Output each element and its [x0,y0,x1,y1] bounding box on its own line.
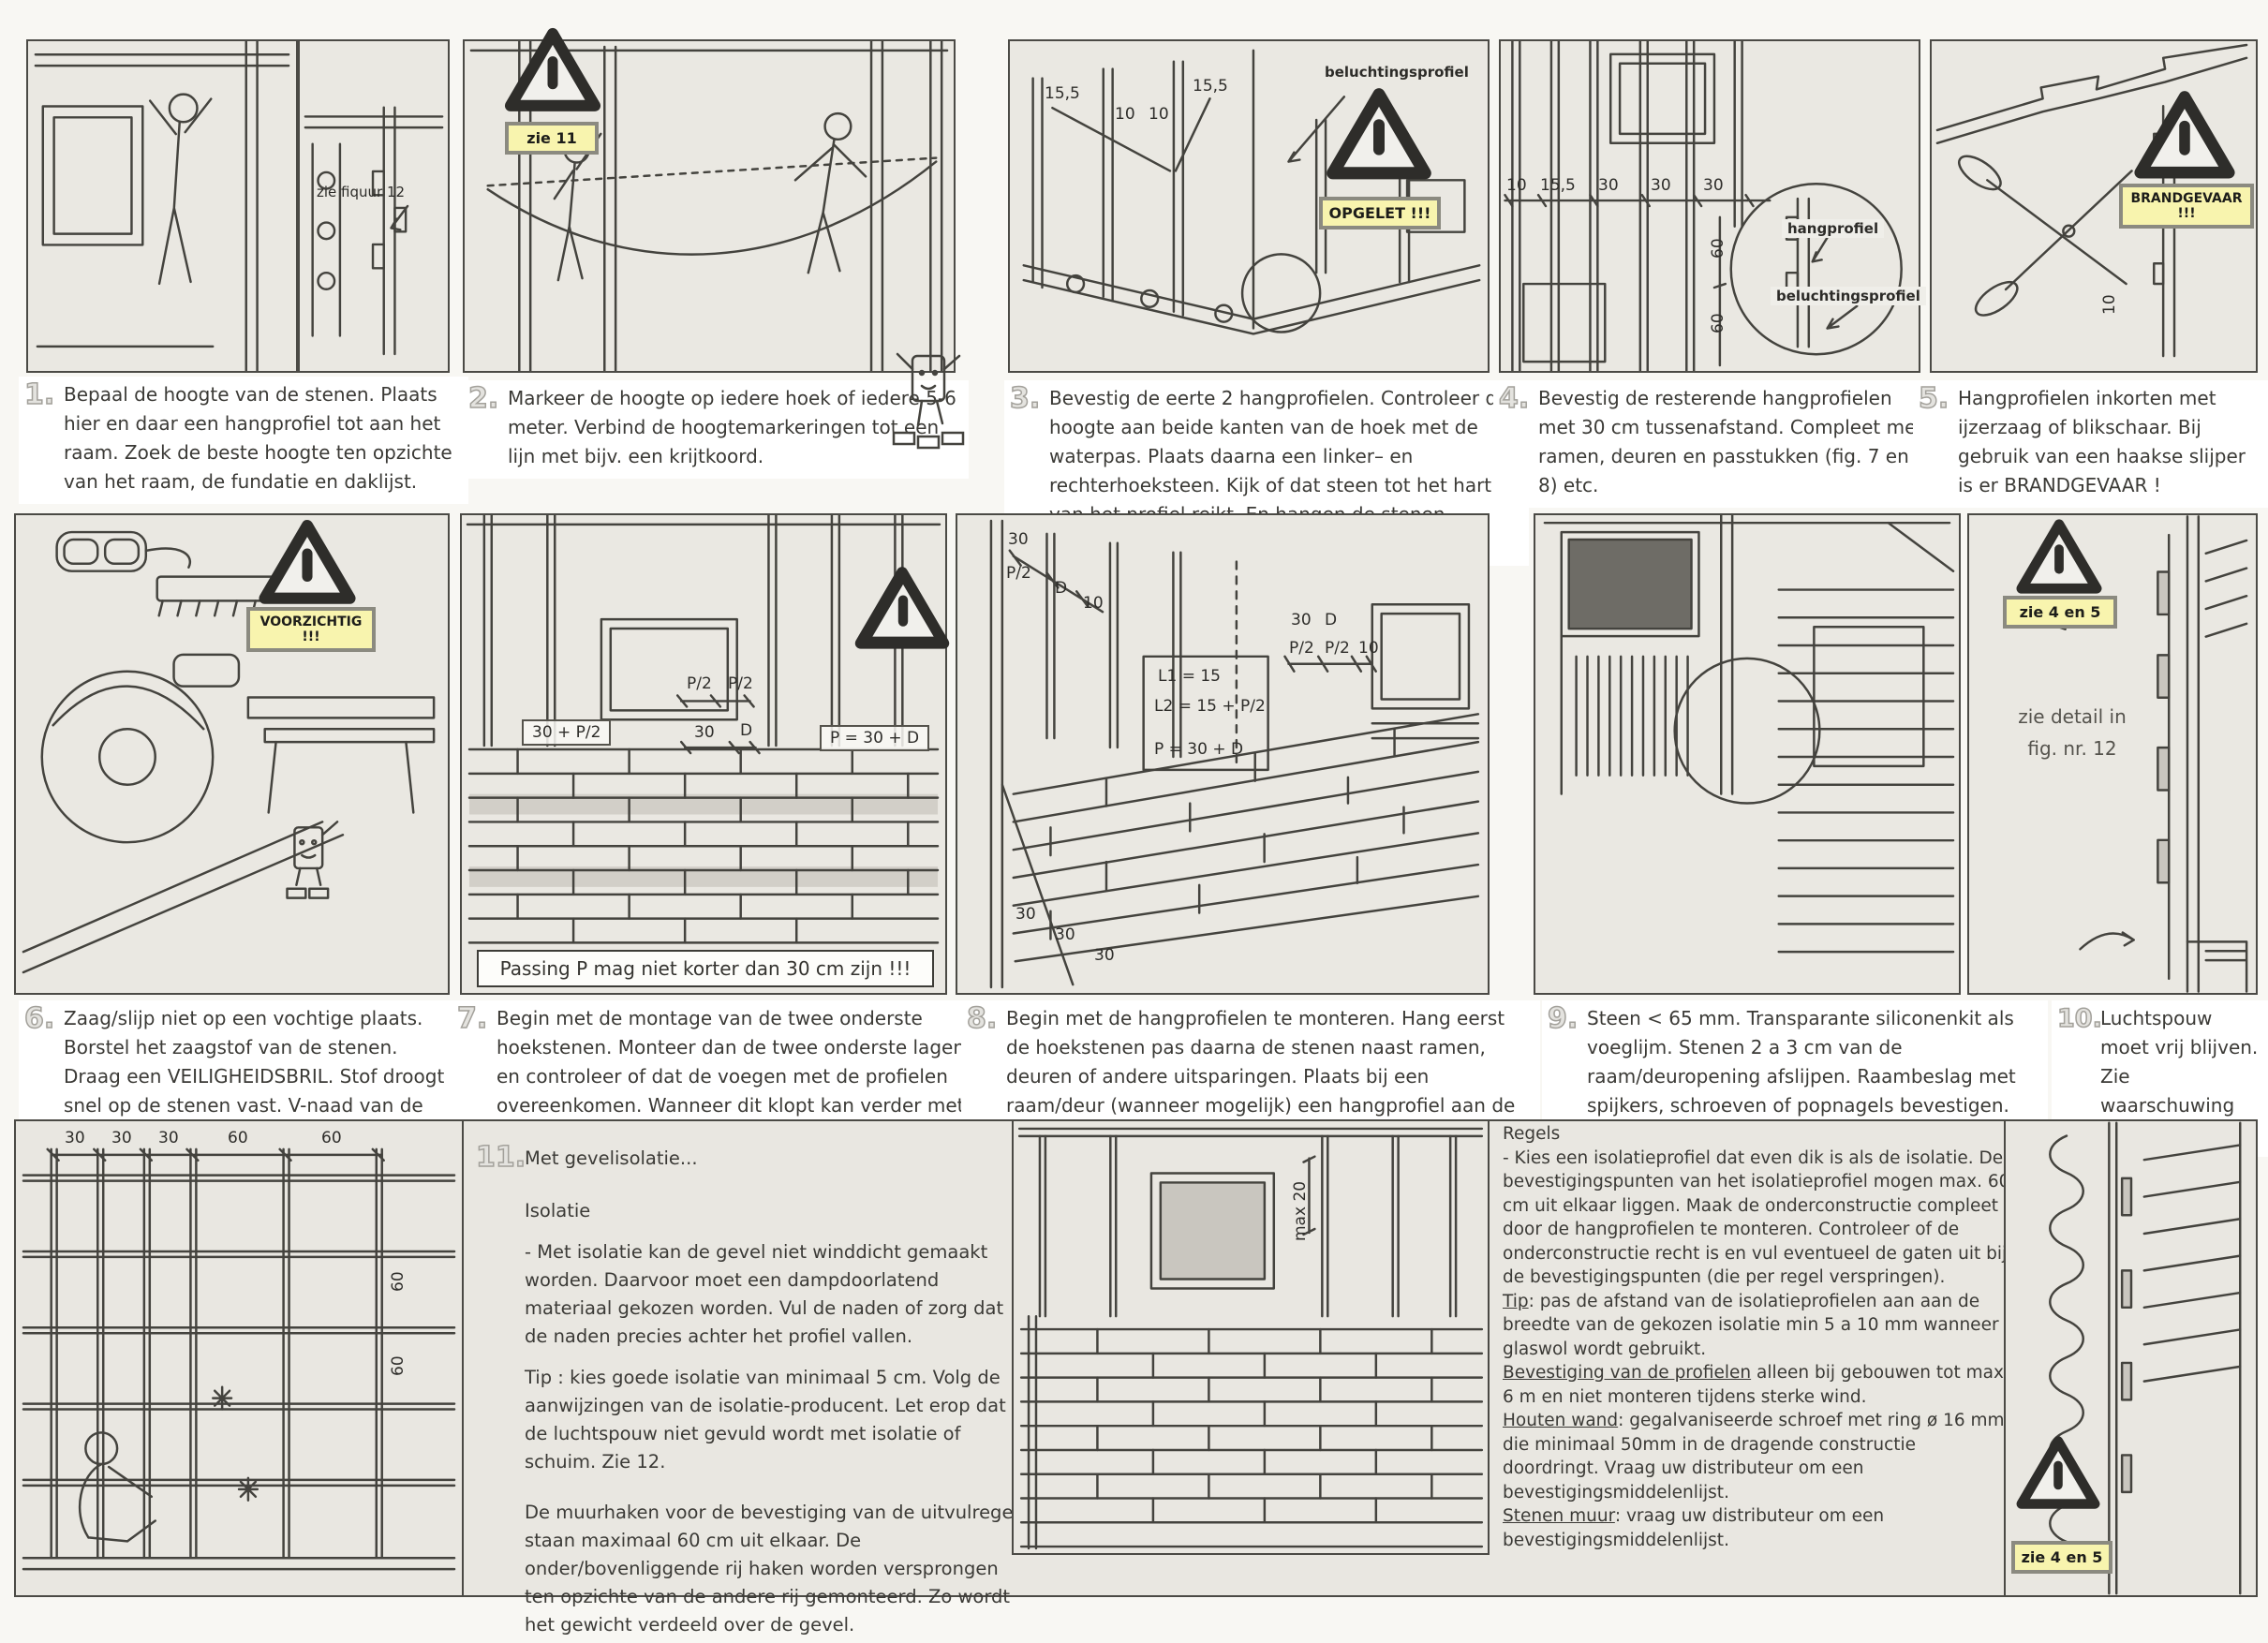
dim-label: P/2 [1289,639,1314,658]
step-11-paragraph: Tip : kies goede isolatie van minimaal 5… [525,1364,1021,1476]
panel-step5-illustration: 10 BRANDGEVAAR !!! [1930,39,2258,373]
dim-label: 30 [1094,946,1115,965]
panel-step6-illustration: VOORZICHTIG !!! [14,513,450,995]
opgelet-warning-label: OPGELET !!! [1319,197,1441,229]
dim-label: 30 [1008,530,1029,549]
regels-heading: Regels [1503,1122,2013,1147]
dim-label: D [740,721,752,740]
panel-step9-illustration [1534,513,1961,995]
step-4-caption: 4. Bevestig de resterende hangprofielen … [1493,380,1934,508]
panel-step4-illustration: 10 15,5 30 30 30 60 60 hangprofiel beluc… [1499,39,1920,373]
step-number: 5. [1919,384,1949,413]
step-number: 9. [1548,1004,1578,1033]
dim-label: 60 [228,1129,248,1147]
dim-label: D [1055,579,1067,598]
step-11-heading: Isolatie [525,1197,1021,1225]
regels-text-block: Regels - Kies een isolatieprofiel dat ev… [1503,1122,2013,1552]
dim-label: 10 [1149,105,1169,124]
warning-triangle-icon [255,515,360,611]
dim-label: 30 [1291,611,1312,629]
see-figure-12-note: zie fiquur 12 [317,184,405,200]
dim-label: P/2 [728,674,753,693]
dim-label: 30 [65,1129,85,1147]
dim-formula: L1 = 15 [1158,667,1221,686]
passing-warning-note: Passing P mag niet korter dan 30 cm zijn… [477,950,934,987]
dim-label: 30 [1015,905,1036,924]
sketch-saw-goggles-brush [16,515,448,993]
dim-label: 30 [1703,176,1724,195]
warning-triangle-icon [501,23,604,118]
step-number: 1. [24,380,54,409]
hangprofiel-label: hangprofiel [1782,219,1884,238]
dim-label: 15,5 [1193,77,1228,96]
dim-label: 15,5 [1045,84,1080,103]
dim-formula-box: 30 + P/2 [522,719,611,746]
step-number: 8. [967,1004,997,1033]
step-5-caption: 5. Hangprofielen inkorten met ijzerzaag … [1913,380,2268,508]
step-11-paragraph: De muurhaken voor de bevestiging van de … [525,1499,1021,1639]
dim-label: 30 [1651,176,1671,195]
see-4-and-5-label-top: zie 4 en 5 [2003,596,2117,629]
step-number: 3. [1010,384,1040,413]
warning-triangle-icon [2130,86,2239,185]
warning-triangle-icon [2013,1432,2103,1515]
dim-label: 10 [2100,294,2119,315]
step-number: 7. [457,1004,487,1033]
step-number: 10. [2057,1004,2102,1033]
see-detail-note: zie detail in fig. nr. 12 [1997,701,2147,764]
dim-label: 15,5 [1540,176,1576,195]
dim-formula: P = 30 + D [1154,740,1243,759]
step-11-title: Met gevelisolatie... [525,1145,1021,1173]
step-number: 6. [24,1004,54,1033]
step-number: 4. [1499,384,1529,413]
dim-label: 60 [1709,313,1727,333]
panel-step8-illustration: 30 P/2 D 10 30 D P/2 P/2 10 L1 = 15 L2 =… [956,513,1490,995]
regels-item: Tip: pas de afstand van de isolatieprofi… [1503,1290,2013,1362]
dim-label: 30 [111,1129,132,1147]
panel-profile-detail: zie fiquur 12 [298,39,450,373]
sketch-hang-profile [300,41,448,371]
dim-label: D [1325,611,1337,629]
dim-formula: L2 = 15 + P/2 [1154,697,1266,716]
sketch-window-and-brick-opening [1535,515,1959,993]
panel-step1-illustration [26,39,298,373]
dim-label: 10 [1083,594,1104,613]
regels-intro: - Kies een isolatieprofiel dat even dik … [1503,1147,2013,1290]
step-11-paragraph: - Met isolatie kan de gevel niet winddic… [525,1238,1021,1351]
panel-step10-illustration: zie 4 en 5 zie detail in fig. nr. 12 [1967,513,2258,995]
beluchtingsprofiel-label: beluchtingsprofiel [1325,64,1469,81]
max-20-dim-label: max 20 [1291,1181,1310,1241]
see-4-and-5-label-bottom: zie 4 en 5 [2011,1541,2112,1574]
warning-triangle-icon [854,555,952,663]
regels-item: Bevestiging van de profielen alleen bij … [1503,1361,2013,1409]
panel-step3-illustration: 15,5 10 10 15,5 beluchtingsprofiel OPGEL… [1008,39,1490,373]
dim-label: 30 [1055,925,1075,944]
dim-label: P/2 [1325,639,1350,658]
panel-step11-wall-illustration: 30 30 30 60 60 60 60 [14,1119,464,1597]
dim-label: P/2 [1006,564,1031,583]
step-number: 11. [476,1141,526,1174]
warning-triangle-icon [2012,515,2106,599]
dim-formula-box: P = 30 + D [820,725,929,751]
dim-label: P/2 [687,674,712,693]
dim-label: 60 [389,1355,408,1376]
dim-label: 60 [1709,238,1727,259]
dim-label: 10 [1358,639,1379,658]
regels-item: Houten wand: gegalvaniseerde schroef met… [1503,1409,2013,1504]
dim-label: 30 [1598,176,1619,195]
brick-mascot-character [890,328,971,468]
panel-step11-window-illustration: max 20 [1012,1119,1490,1555]
panel-step2-illustration: zie 11 [463,39,956,373]
sketch-wall-window-bricks [1014,1121,1488,1553]
warning-triangle-icon [1323,82,1435,187]
dim-label: 10 [1506,176,1527,195]
step-1-caption: 1. Bepaal de hoogte van de stenen. Plaat… [19,377,468,504]
montage-instruction-sheet: MONTAGE zie fiquur 12 [0,0,2268,1643]
panel-insulation-section-illustration: zie 4 en 5 [2004,1119,2258,1597]
brandgevaar-warning-label: BRANDGEVAAR !!! [2119,184,2254,229]
sketch-insulation-coil-section [2006,1121,2256,1595]
see-step-11-label: zie 11 [505,122,599,155]
dim-label: 10 [1115,105,1135,124]
step-number: 2. [468,384,498,413]
regels-item: Stenen muur: vraag uw distributeur om ee… [1503,1504,2013,1552]
dim-label: 30 [694,723,715,742]
dim-label: 60 [389,1271,408,1292]
beluchtingsprofiel-detail-label: beluchtingsprofiel [1771,287,1926,305]
dim-label: 60 [321,1129,342,1147]
sketch-worker-at-wall [28,41,296,371]
dim-label: 30 [158,1129,179,1147]
voorzichtig-warning-label: VOORZICHTIG !!! [246,607,376,652]
